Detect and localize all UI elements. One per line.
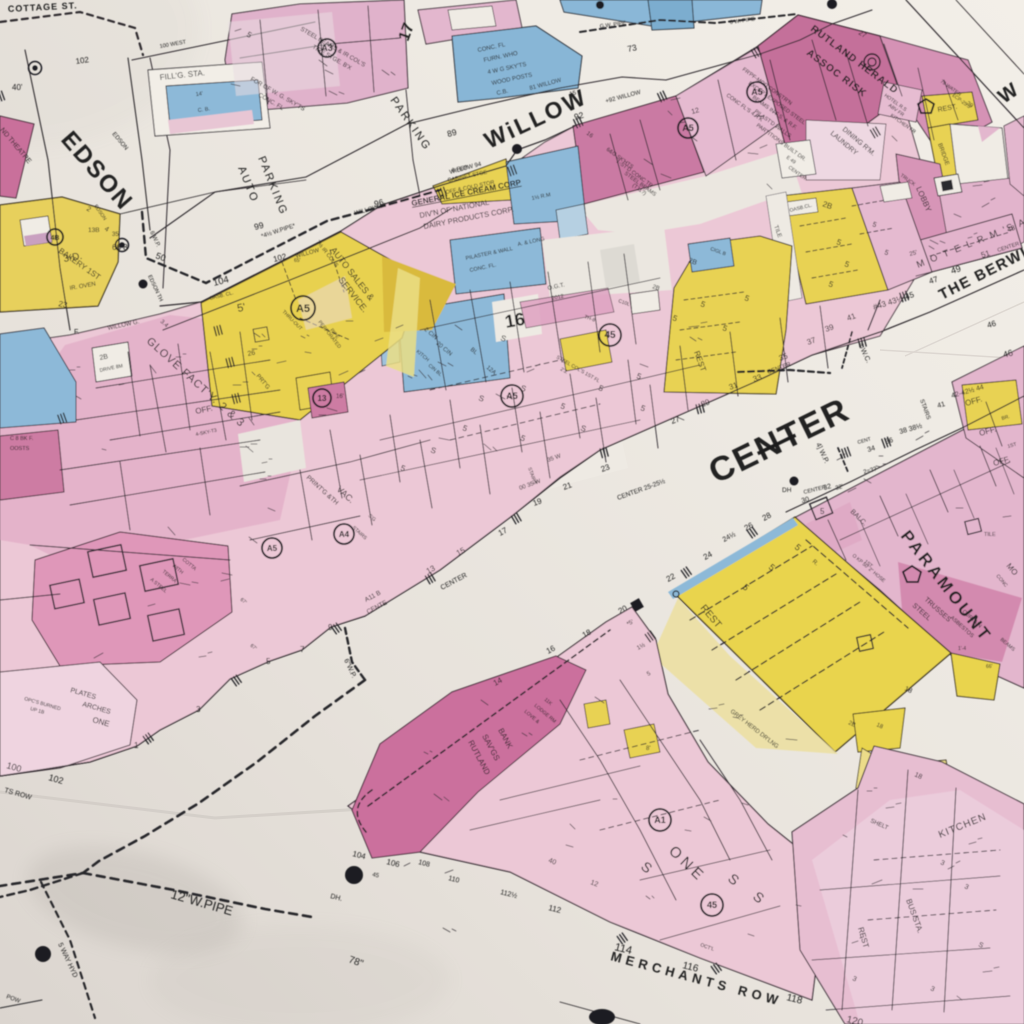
svg-text:66': 66' — [986, 664, 993, 670]
svg-text:OOSTS: OOSTS — [10, 446, 30, 452]
svg-text:A5: A5 — [506, 391, 518, 401]
svg-text:1'-4: 1'-4 — [958, 646, 966, 652]
svg-text:16': 16' — [336, 394, 344, 400]
svg-text:40': 40' — [12, 83, 23, 92]
svg-text:45: 45 — [604, 330, 616, 341]
svg-text:13B: 13B — [88, 227, 100, 234]
svg-text:DH: DH — [782, 487, 792, 494]
svg-text:F.: F. — [74, 329, 80, 336]
svg-text:13: 13 — [318, 394, 327, 403]
svg-text:16: 16 — [503, 309, 526, 332]
svg-text:8': 8' — [646, 746, 650, 752]
svg-text:14': 14' — [195, 91, 203, 98]
svg-text:C 8 BK F.: C 8 BK F. — [10, 436, 34, 442]
svg-text:66 8: 66 8 — [112, 243, 128, 252]
svg-text:4B: 4B — [51, 235, 60, 242]
svg-text:5: 5 — [820, 507, 825, 516]
svg-text:A4: A4 — [339, 530, 350, 539]
svg-text:65': 65' — [294, 258, 301, 264]
svg-text:5: 5 — [266, 657, 271, 666]
svg-text:35': 35' — [112, 232, 120, 238]
svg-text:3: 3 — [196, 705, 201, 714]
svg-text:9: 9 — [328, 623, 333, 632]
svg-text:A5: A5 — [296, 303, 310, 315]
svg-text:45: 45 — [707, 900, 717, 910]
svg-text:A5: A5 — [682, 123, 694, 133]
svg-text:102: 102 — [75, 55, 90, 66]
svg-text:A1: A1 — [654, 815, 666, 825]
svg-text:1: 1 — [134, 741, 139, 750]
svg-text:7: 7 — [300, 645, 305, 654]
svg-text:A5: A5 — [267, 544, 278, 553]
svg-text:TILE: TILE — [984, 532, 996, 538]
